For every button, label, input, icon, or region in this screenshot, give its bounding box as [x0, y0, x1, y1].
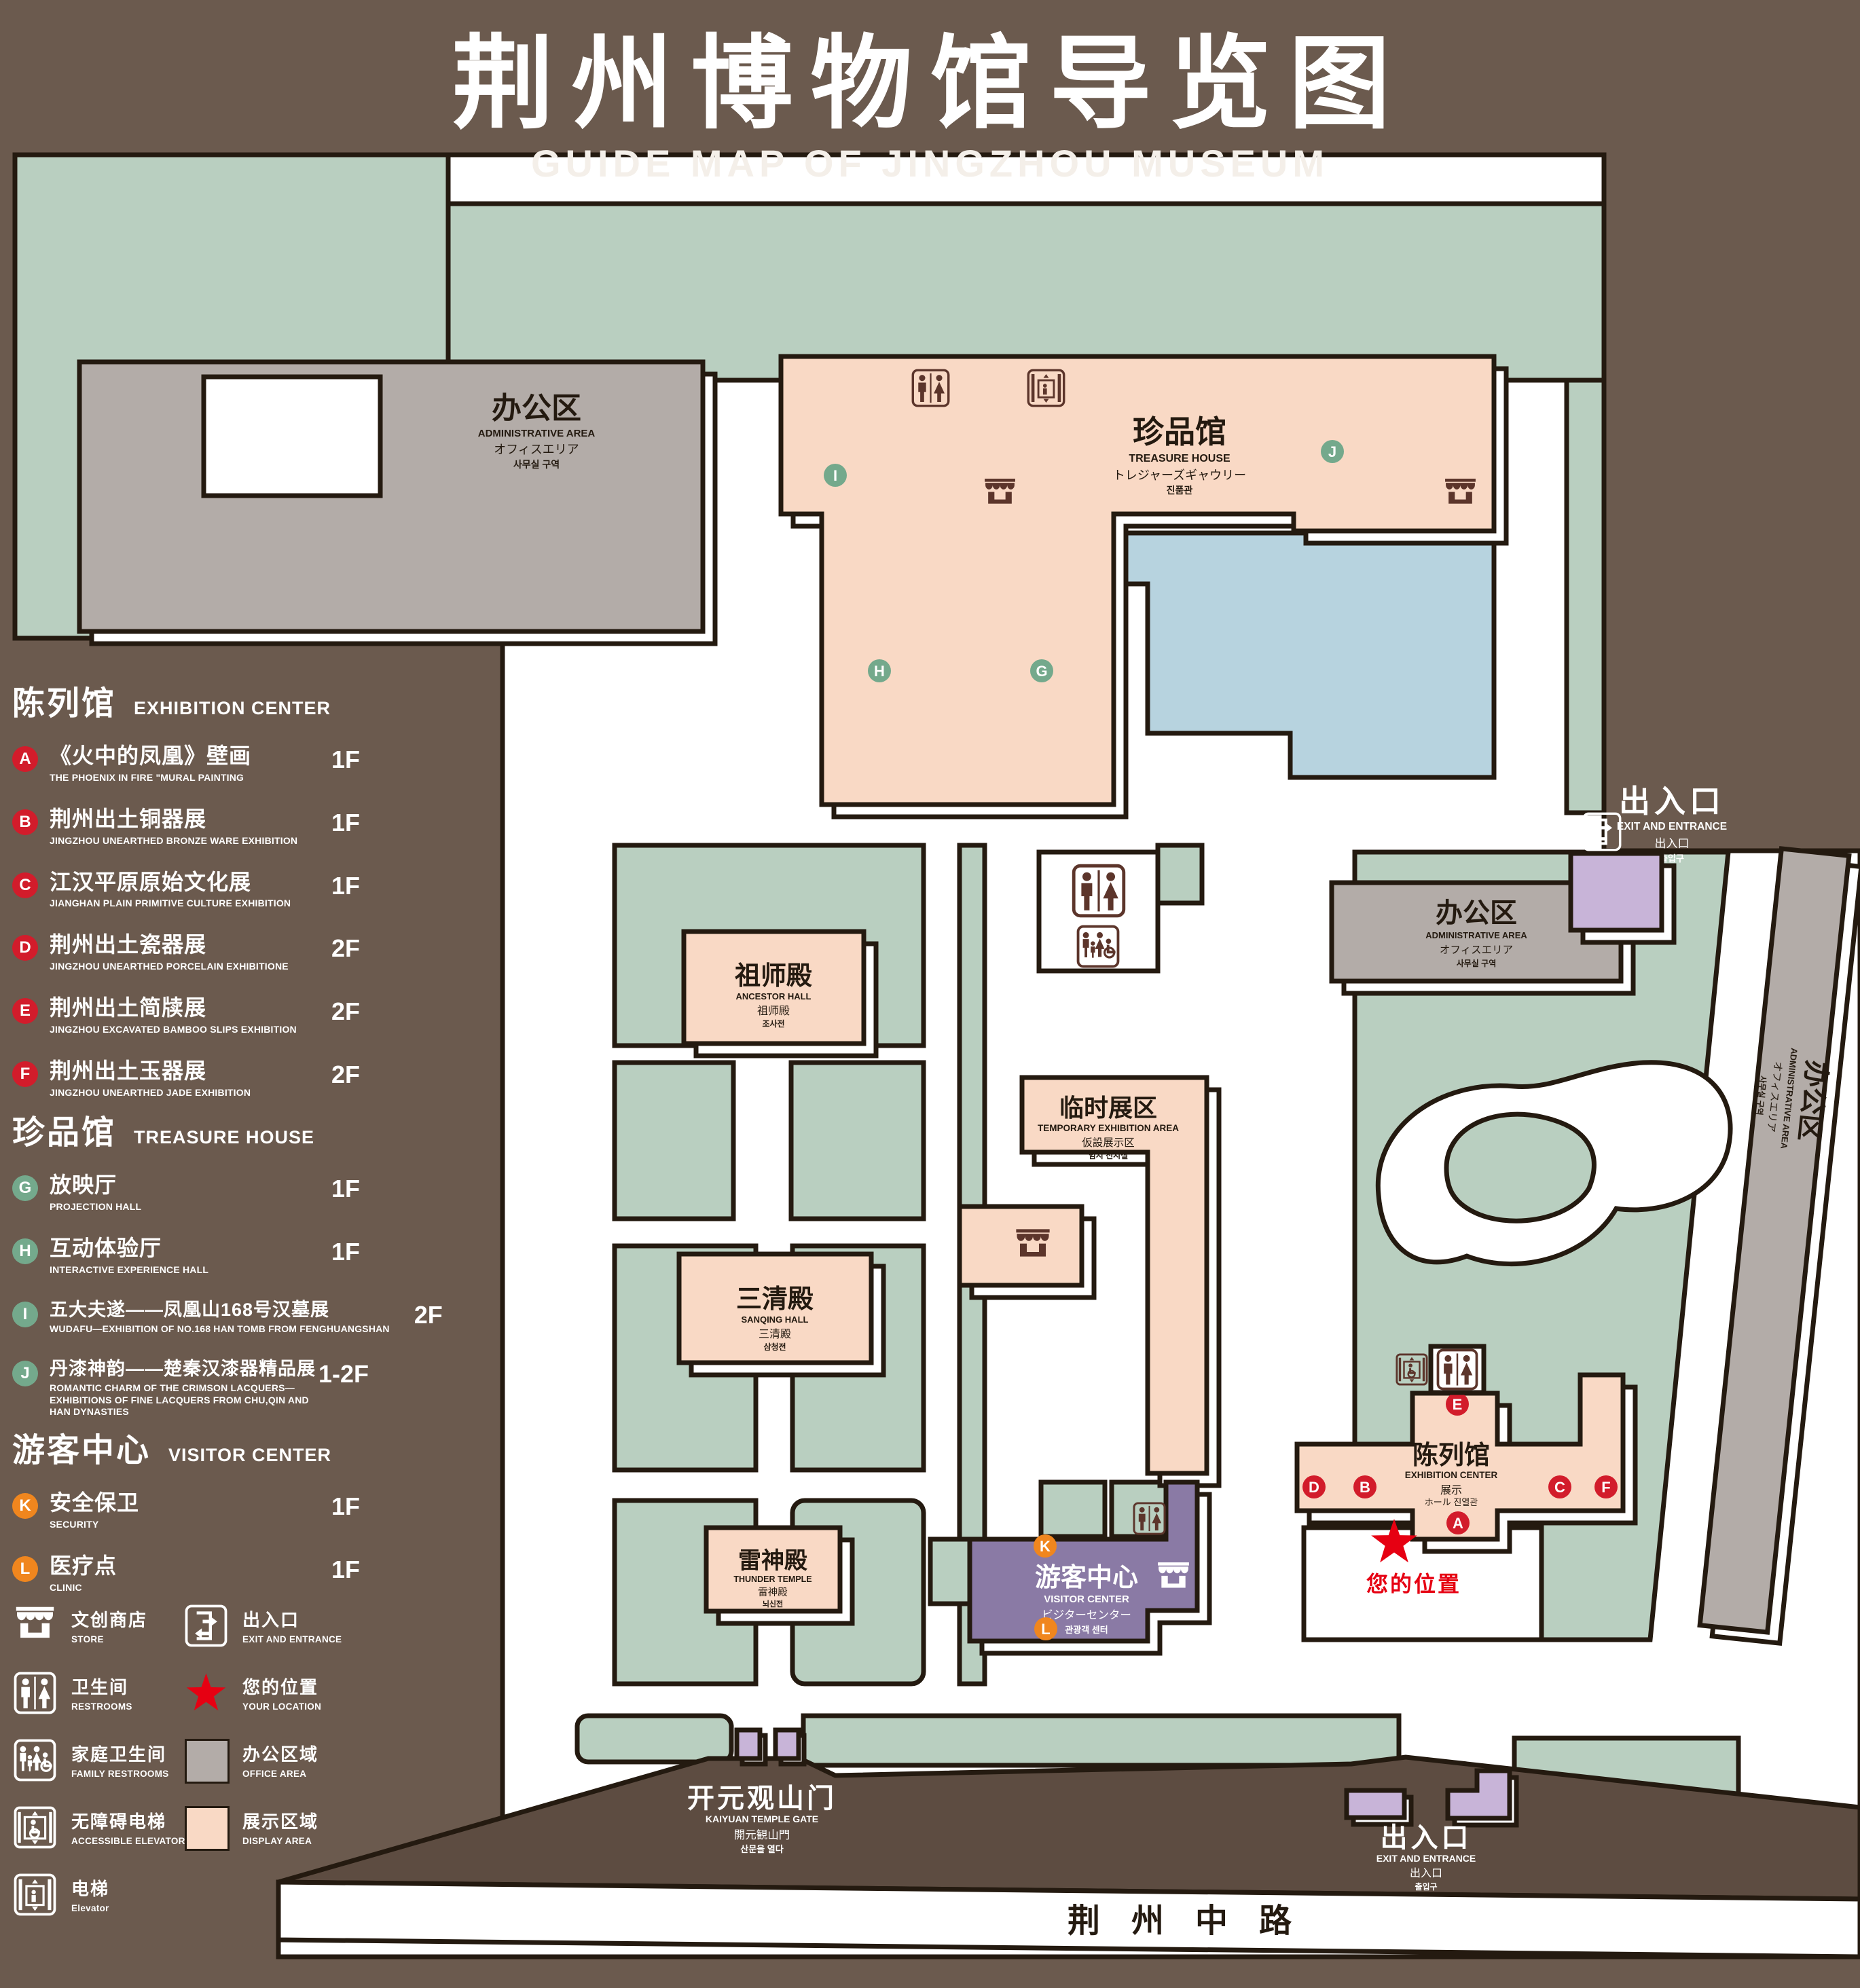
item-zh: 荆州出土简牍展 — [50, 996, 307, 1020]
svg-text:B: B — [1360, 1479, 1370, 1496]
svg-text:출입구: 출입구 — [1415, 1881, 1437, 1892]
svg-text:陈列馆: 陈列馆 — [1412, 1441, 1490, 1470]
lawn-vc-tab1 — [1041, 1482, 1105, 1536]
svg-text:ホール 진열관: ホール 진열관 — [1425, 1497, 1478, 1507]
marker-h: H — [868, 659, 891, 682]
item-zh: 荆州出土玉器展 — [50, 1059, 307, 1084]
icon-zh: 家庭卫生间 — [71, 1741, 169, 1766]
legend-item-b: B 荆州出土铜器展JINGZHOU UNEARTHED BRONZE WARE … — [12, 807, 360, 846]
item-zh: 安全保卫 — [50, 1491, 307, 1515]
icon-zh: 展示区域 — [242, 1808, 318, 1833]
legend-header-zh: 珍品馆 — [12, 1105, 116, 1153]
marker-b: B — [12, 809, 38, 835]
svg-text:TREASURE HOUSE: TREASURE HOUSE — [1129, 453, 1230, 464]
legend-family-restrooms: 家庭卫生间FAMILY RESTROOMS — [14, 1738, 180, 1782]
legend-header-en: TREASURE HOUSE — [134, 1127, 314, 1148]
building-gate-east — [1571, 853, 1674, 942]
item-floor: 1F — [307, 1492, 360, 1521]
legend-item-g: G 放映厅PROJECTION HALL 1F — [12, 1173, 360, 1212]
svg-text:조사전: 조사전 — [762, 1018, 784, 1029]
legend-exit-entrance: 出入口EXIT AND ENTRANCE — [185, 1604, 361, 1647]
svg-text:祖师殿: 祖师殿 — [757, 1005, 790, 1017]
marker-c: C — [1548, 1475, 1571, 1498]
legend-section-exhibition-center: 陈列馆 EXHIBITION CENTER A 《火中的凤凰》壁画THE PHO… — [12, 676, 360, 1122]
svg-text:珍品馆: 珍品馆 — [1133, 414, 1226, 449]
icon-zh: 您的位置 — [242, 1674, 321, 1699]
svg-text:C: C — [1554, 1479, 1565, 1496]
marker-l: L — [1034, 1617, 1057, 1640]
building-ancestor-hall: 祖师殿 ANCESTOR HALL 祖师殿 조사전 — [684, 932, 876, 1056]
svg-text:E: E — [1453, 1396, 1463, 1413]
svg-text:雷神殿: 雷神殿 — [738, 1548, 807, 1574]
svg-text:진품관: 진품관 — [1167, 485, 1193, 496]
icon-legend-col-1: 文创商店STORE 卫生间RESTROOMS 家庭卫生间FAMILY RESTR… — [14, 1604, 180, 1940]
item-floor: 1F — [307, 1556, 360, 1584]
road-label: 荆州中路 — [1068, 1903, 1323, 1939]
icon-en: STORE — [71, 1634, 147, 1644]
svg-text:삼청전: 삼청전 — [763, 1342, 786, 1352]
item-floor: 2F — [390, 1301, 443, 1329]
page-subtitle: GUIDE MAP OF JINGZHOU MUSEUM — [0, 141, 1860, 185]
legend-office-area: 办公区域OFFICE AREA — [185, 1738, 361, 1782]
exit-entrance-icon — [185, 1604, 227, 1647]
svg-text:산문을 열다: 산문을 열다 — [740, 1844, 783, 1854]
svg-text:사무실 구역: 사무실 구역 — [513, 459, 560, 470]
icon-zh: 办公区域 — [242, 1741, 318, 1766]
svg-text:開元観山門: 開元観山門 — [734, 1828, 790, 1841]
store-icon — [14, 1604, 56, 1647]
legend-item-d: D 荆州出土瓷器展JINGZHOU UNEARTHED PORCELAIN EX… — [12, 933, 360, 972]
lawn-vc-left — [930, 1539, 970, 1604]
marker-j: J — [1321, 440, 1344, 463]
svg-text:관광객 센터: 관광객 센터 — [1065, 1625, 1108, 1635]
icon-zh: 卫生间 — [71, 1674, 132, 1699]
elevator-icon — [14, 1873, 56, 1916]
svg-text:H: H — [874, 663, 885, 680]
svg-text:办公区: 办公区 — [492, 392, 581, 425]
legend-header: 陈列馆 EXHIBITION CENTER — [12, 676, 360, 724]
svg-text:出入口: 出入口 — [1655, 837, 1690, 850]
item-en: JIANGHAN PLAIN PRIMITIVE CULTURE EXHIBIT… — [50, 898, 307, 908]
marker-k: K — [1034, 1534, 1057, 1558]
legend-item-j: J 丹漆神韵——楚秦汉漆器精品展ROMANTIC CHARM OF THE CR… — [12, 1359, 360, 1418]
marker-f: F — [12, 1061, 38, 1087]
marker-i: I — [12, 1302, 38, 1327]
building-admin-nw: 办公区 ADMINISTRATIVE AREA オフィスエリア 사무실 구역 — [79, 362, 715, 644]
svg-text:J: J — [1328, 443, 1336, 460]
svg-text:SANQING HALL: SANQING HALL — [742, 1314, 809, 1325]
item-zh: 放映厅 — [50, 1173, 307, 1198]
marker-d: D — [1302, 1475, 1326, 1498]
svg-text:出入口: 出入口 — [1619, 784, 1725, 819]
marker-a: A — [12, 746, 38, 772]
item-floor: 1F — [307, 1175, 360, 1203]
item-en: JINGZHOU UNEARTHED PORCELAIN EXHIBITIONE — [50, 961, 307, 972]
legend-display-area: 展示区域DISPLAY AREA — [185, 1805, 361, 1849]
svg-text:仮設展示区: 仮設展示区 — [1082, 1137, 1135, 1149]
svg-text:オフィスエリア: オフィスエリア — [494, 443, 579, 456]
lawn-facility-tab — [1158, 845, 1202, 903]
marker-l: L — [12, 1556, 38, 1582]
accessible-elevator-icon — [14, 1806, 56, 1849]
item-zh: 荆州出土铜器展 — [50, 807, 307, 832]
icon-legend-col-2: 出入口EXIT AND ENTRANCE 您的位置YOUR LOCATION 办… — [185, 1604, 361, 1873]
page-title: 荆州博物馆导览图 — [0, 1, 1860, 149]
marker-e: E — [1446, 1393, 1469, 1416]
legend-item-a: A 《火中的凤凰》壁画THE PHOENIX IN FIRE "MURAL PA… — [12, 744, 360, 783]
svg-text:I: I — [833, 467, 837, 484]
item-zh: 互动体验厅 — [50, 1236, 307, 1261]
lawn-compound-3 — [791, 1063, 924, 1219]
item-floor: 1-2F — [316, 1360, 369, 1388]
svg-text:展示: 展示 — [1440, 1485, 1462, 1496]
icon-zh: 电梯 — [71, 1875, 109, 1900]
svg-text:KAIYUAN TEMPLE GATE: KAIYUAN TEMPLE GATE — [706, 1814, 818, 1824]
icon-zh: 无障碍电梯 — [71, 1808, 185, 1833]
legend-item-e: E 荆州出土简牍展JINGZHOU EXCAVATED BAMBOO SLIPS… — [12, 996, 360, 1035]
svg-text:임시 전시실: 임시 전시실 — [1089, 1150, 1129, 1160]
svg-text:F: F — [1601, 1479, 1610, 1496]
legend-item-h: H 互动体验厅INTERACTIVE EXPERIENCE HALL 1F — [12, 1236, 360, 1275]
item-en: CLINIC — [50, 1582, 307, 1593]
item-en: INTERACTIVE EXPERIENCE HALL — [50, 1264, 307, 1275]
building-sanqing-hall: 三清殿 SANQING HALL 三清殿 삼청전 — [679, 1254, 883, 1375]
svg-text:三清殿: 三清殿 — [759, 1328, 791, 1340]
marker-b: B — [1353, 1475, 1376, 1498]
item-zh: 江汉平原原始文化展 — [50, 870, 307, 895]
svg-text:游客中心: 游客中心 — [1035, 1563, 1138, 1592]
legend-header: 游客中心 VISITOR CENTER — [12, 1423, 360, 1471]
icon-en: FAMILY RESTROOMS — [71, 1769, 169, 1779]
item-en: JINGZHOU UNEARTHED JADE EXHIBITION — [50, 1087, 307, 1098]
item-zh: 荆州出土瓷器展 — [50, 933, 307, 957]
svg-text:A: A — [1453, 1515, 1463, 1532]
marker-f: F — [1594, 1475, 1618, 1498]
marker-c: C — [12, 872, 38, 898]
marker-e: E — [12, 998, 38, 1024]
lawn-compound-2 — [615, 1063, 733, 1219]
legend-item-f: F 荆州出土玉器展JINGZHOU UNEARTHED JADE EXHIBIT… — [12, 1059, 360, 1098]
legend-section-visitor-center: 游客中心 VISITOR CENTER K 安全保卫SECURITY 1F L … — [12, 1423, 360, 1617]
svg-text:オフィスエリア: オフィスエリア — [1440, 944, 1513, 956]
item-zh: 医疗点 — [50, 1554, 307, 1579]
building-gate-south-1 — [1347, 1790, 1411, 1824]
svg-text:뇌신전: 뇌신전 — [763, 1599, 783, 1608]
svg-text:D: D — [1309, 1479, 1319, 1496]
building-store-kiosk — [960, 1207, 1094, 1297]
svg-text:ビジターセンター: ビジターセンター — [1042, 1608, 1131, 1621]
svg-text:EXHIBITION CENTER: EXHIBITION CENTER — [1405, 1470, 1498, 1480]
building-thunder-temple: 雷神殿 THUNDER TEMPLE 雷神殿 뇌신전 — [706, 1528, 852, 1623]
item-zh: 丹漆神韵——楚秦汉漆器精品展 — [50, 1359, 316, 1379]
item-floor: 1F — [307, 745, 360, 774]
svg-text:您的位置: 您的位置 — [1366, 1572, 1461, 1596]
item-en: PROJECTION HALL — [50, 1201, 307, 1212]
svg-text:出入口: 出入口 — [1381, 1823, 1472, 1853]
marker-k: K — [12, 1493, 38, 1519]
icon-en: ACCESSIBLE ELEVATOR — [71, 1836, 185, 1846]
svg-text:K: K — [1040, 1538, 1051, 1555]
svg-text:사무실 구역: 사무실 구역 — [1457, 958, 1497, 968]
marker-j: J — [12, 1361, 38, 1386]
item-en: JINGZHOU EXCAVATED BAMBOO SLIPS EXHIBITI… — [50, 1024, 307, 1035]
svg-text:办公区: 办公区 — [1436, 898, 1517, 928]
item-en: WUDAFU—EXHIBITION OF NO.168 HAN TOMB FRO… — [50, 1323, 390, 1334]
svg-text:开元观山门: 开元观山门 — [687, 1784, 837, 1814]
icon-en: RESTROOMS — [71, 1701, 132, 1712]
item-en: SECURITY — [50, 1519, 307, 1530]
svg-text:ANCESTOR HALL: ANCESTOR HALL — [736, 991, 812, 1001]
restrooms-icon — [14, 1672, 56, 1714]
legend-item-i: I 五大夫遂——凤凰山168号汉墓展WUDAFU—EXHIBITION OF N… — [12, 1300, 360, 1334]
marker-h: H — [12, 1238, 38, 1264]
marker-d: D — [12, 935, 38, 961]
item-en: ROMANTIC CHARM OF THE CRIMSON LACQUERS—E… — [50, 1382, 316, 1418]
svg-text:ADMINISTRATIVE AREA: ADMINISTRATIVE AREA — [1425, 930, 1527, 940]
restroom-box — [1431, 1346, 1484, 1393]
marker-g: G — [1030, 659, 1053, 682]
legend-your-location: 您的位置YOUR LOCATION — [185, 1671, 361, 1714]
legend-item-c: C 江汉平原原始文化展JIANGHAN PLAIN PRIMITIVE CULT… — [12, 870, 360, 909]
svg-text:临时展区: 临时展区 — [1059, 1094, 1157, 1122]
svg-text:THUNDER TEMPLE: THUNDER TEMPLE — [733, 1575, 812, 1584]
svg-text:TEMPORARY EXHIBITION AREA: TEMPORARY EXHIBITION AREA — [1038, 1123, 1179, 1133]
display-area-swatch — [185, 1806, 227, 1849]
facilities-block — [1039, 852, 1158, 971]
legend-elevator: 电梯Elevator — [14, 1873, 180, 1916]
icon-en: EXIT AND ENTRANCE — [242, 1634, 342, 1644]
icon-en: Elevator — [71, 1903, 109, 1913]
family-restrooms-icon — [14, 1739, 56, 1782]
marker-g: G — [12, 1175, 38, 1201]
marker-a: A — [1446, 1511, 1470, 1534]
legend-header-zh: 陈列馆 — [12, 676, 116, 724]
legend-restrooms: 卫生间RESTROOMS — [14, 1671, 180, 1714]
svg-text:EXIT AND ENTRANCE: EXIT AND ENTRANCE — [1376, 1853, 1476, 1864]
item-floor: 2F — [307, 997, 360, 1026]
svg-text:VISITOR CENTER: VISITOR CENTER — [1044, 1594, 1129, 1605]
item-floor: 2F — [307, 1061, 360, 1089]
item-zh: 《火中的凤凰》壁画 — [50, 744, 307, 769]
icon-zh: 文创商店 — [71, 1606, 147, 1632]
marker-i: I — [824, 464, 847, 487]
svg-text:雷神殿: 雷神殿 — [758, 1587, 788, 1598]
lawn-right-strip — [1567, 380, 1604, 813]
svg-text:L: L — [1041, 1621, 1050, 1638]
park-island — [1446, 1114, 1594, 1221]
item-floor: 2F — [307, 934, 360, 963]
office-area-swatch — [185, 1739, 227, 1782]
item-en: JINGZHOU UNEARTHED BRONZE WARE EXHIBITIO… — [50, 835, 307, 846]
your-location-icon — [185, 1672, 227, 1714]
svg-text:トレジャーズギャウリー: トレジャーズギャウリー — [1113, 468, 1246, 482]
svg-text:G: G — [1036, 663, 1047, 680]
svg-text:出入口: 出入口 — [1410, 1867, 1442, 1879]
right-exit-area — [1604, 200, 1860, 851]
legend-item-k: K 安全保卫SECURITY 1F — [12, 1491, 360, 1530]
svg-text:ADMINISTRATIVE AREA: ADMINISTRATIVE AREA — [478, 428, 596, 439]
icon-en: YOUR LOCATION — [242, 1701, 321, 1712]
icon-en: DISPLAY AREA — [242, 1836, 318, 1846]
lawn-top-band — [448, 204, 1604, 380]
item-en: THE PHOENIX IN FIRE "MURAL PAINTING — [50, 772, 307, 783]
item-floor: 1F — [307, 872, 360, 900]
legend-header-en: VISITOR CENTER — [168, 1445, 331, 1466]
item-zh: 五大夫遂——凤凰山168号汉墓展 — [50, 1300, 390, 1320]
legend-header: 珍品馆 TREASURE HOUSE — [12, 1105, 360, 1153]
legend-accessible-elevator: 无障碍电梯ACCESSIBLE ELEVATOR — [14, 1805, 180, 1849]
legend-header-zh: 游客中心 — [12, 1423, 151, 1471]
legend-item-l: L 医疗点CLINIC 1F — [12, 1554, 360, 1593]
svg-text:EXIT AND ENTRANCE: EXIT AND ENTRANCE — [1617, 821, 1727, 832]
lawn-gate-left — [577, 1716, 731, 1762]
svg-text:祖师殿: 祖师殿 — [735, 962, 812, 991]
icon-zh: 出入口 — [242, 1606, 342, 1632]
legend-section-treasure-house: 珍品馆 TREASURE HOUSE G 放映厅PROJECTION HALL … — [12, 1105, 360, 1443]
item-floor: 1F — [307, 809, 360, 837]
icon-en: OFFICE AREA — [242, 1769, 318, 1779]
lawn-gate-right — [803, 1716, 1399, 1765]
legend-store: 文创商店STORE — [14, 1604, 180, 1647]
item-floor: 1F — [307, 1238, 360, 1266]
legend-header-en: EXHIBITION CENTER — [134, 698, 331, 719]
svg-text:三清殿: 三清殿 — [736, 1285, 814, 1314]
